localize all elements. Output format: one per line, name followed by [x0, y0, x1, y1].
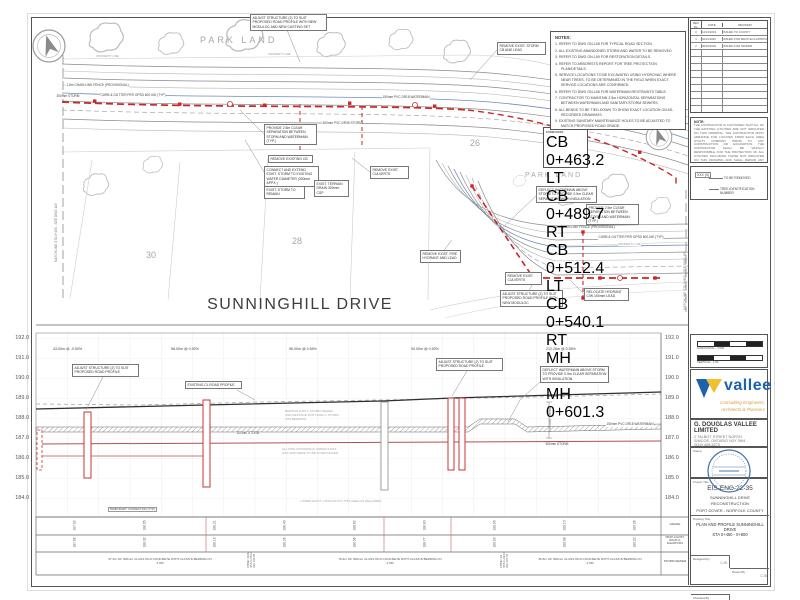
firm-logo-block: vallee Consulting Engineers, Architects …	[690, 369, 768, 419]
elev-left: 192.0	[5, 335, 29, 341]
callout-separation: PROVIDE 2.5m CLEAR SEPARATION BETWEEN ST…	[264, 124, 317, 145]
callout-existing-cl-profile: EXISTING CL ROAD PROFILE	[185, 381, 242, 389]
professional-engineer-stamp	[705, 448, 753, 494]
drawing-sheet: PARK LAND PARK LAND PROPERTY LINE PROPER…	[0, 0, 800, 600]
revision-row-empty	[691, 99, 767, 106]
tree-legend-box: XXX (X) TO BE REMOVED TREE IDENTIFICATIO…	[690, 166, 768, 200]
band1-value: 189.10	[563, 517, 568, 535]
elev-right: 189.0	[665, 395, 689, 401]
right-panel-divider	[688, 17, 689, 585]
revision-cell: ISSUED TO COUNTY	[723, 30, 767, 34]
tree-legend-leader-2	[709, 189, 719, 190]
drawn-by-value: CJB	[732, 574, 767, 578]
revision-row-empty	[691, 92, 767, 99]
designed-by-cell: Designed by : CJB	[691, 555, 730, 568]
band-structure-ticks	[206, 517, 451, 552]
elev-left: 188.0	[5, 415, 29, 421]
drawing-sta: STA 0+450 - 0+800	[693, 532, 767, 537]
pipe-note-1: 97.6m OF 300mm CLASS 65-D CONCRETE WITH …	[105, 557, 215, 565]
revision-row-empty	[691, 57, 767, 64]
revision-cell: 12/13/2019	[702, 30, 723, 34]
project-name-3: PORT DOVER - NORFOLK COUNTY	[691, 508, 769, 513]
band2-value: 189.22	[633, 534, 638, 552]
note-item: 3. REFER TO DWG GN-109 FOR RESTORATION D…	[555, 55, 681, 60]
curb-data-table: CURB DATA CB 0+463.2 LT CB 0+489.7 RT CB…	[543, 127, 588, 168]
callout-remove-culverts: REMOVE EXIST. CULVERTS	[370, 166, 409, 179]
property-line-label-2: PROPERTY LINE	[268, 53, 291, 56]
band2-value: 188.77	[423, 534, 428, 552]
storm-300-label: 300mm STORM	[56, 95, 80, 99]
callout-connect-extend: CONNECT AND EXTEND EXIST. STORM TO EXIST…	[264, 166, 319, 187]
elev-right: 184.0	[665, 495, 689, 501]
band2-value: 188.58	[353, 534, 358, 552]
band-label-storm: STORM SEWER	[662, 560, 688, 564]
band2-value: 188.36	[283, 534, 288, 552]
elev-right: 191.0	[665, 355, 689, 361]
revision-cell: 1	[691, 37, 702, 41]
elev-right: 190.0	[665, 375, 689, 381]
structure-tag-line: INV 186.85	[254, 546, 257, 568]
notes-box: NOTES: 1. REFER TO DWG GN-108 FOR TYPICA…	[550, 31, 686, 130]
elev-right: 192.0	[665, 335, 689, 341]
firm-tagline-2: Architects & Planners	[691, 407, 765, 412]
note-item: 6. REFER TO DWG GN-106 FOR WATERMAIN RES…	[555, 90, 681, 95]
notes-title: NOTES:	[555, 35, 681, 40]
callout-remove-storm-cb: REMOVE EXIST. STORM CB AND LEAD	[497, 42, 546, 55]
note-item: 8. ALL BENDS TO BE TIED-DOWN TO SHOW EXA…	[555, 108, 681, 118]
firm-company-name: G. DOUGLAS VALLEE LIMITED	[694, 422, 764, 434]
revision-cell: 0	[691, 30, 702, 34]
checked-by-cell: Checked By : TRL	[691, 594, 730, 600]
band1-value: 188.40	[283, 517, 288, 535]
revision-row-empty	[691, 85, 767, 92]
callout-adjust-structure-profile-2: ADJUST STRUCTURE (2) TO SUIT PROPOSED RO…	[436, 358, 503, 371]
revision-header-row: REV No. DATE REVISION	[691, 21, 767, 29]
revision-header-rev: REV No.	[691, 21, 702, 29]
property-line-label-3: PROPERTY LINE	[618, 243, 641, 246]
grade-label: 96.00m @ 0.55%	[288, 347, 318, 351]
title-block: Project Title EIS-ENG-22-35 SUNNINGHILL …	[690, 478, 768, 585]
band1-value: 188.80	[423, 517, 428, 535]
revision-row-empty	[691, 106, 767, 112]
structure-tag-cluster-1: CBMH 110A STA 0+552.0 INV 186.85	[247, 546, 257, 568]
storm-profile-label-2: 300mm STORM	[545, 443, 569, 447]
revision-row-empty	[691, 78, 767, 85]
street-title: SUNNINGHILL DRIVE	[120, 296, 480, 314]
designed-by-value: CJB	[693, 561, 727, 565]
callout-remove-cb: REMOVE EXISTING CB	[268, 155, 313, 163]
elev-left: 184.0	[5, 495, 29, 501]
tree-legend-leader-1	[709, 178, 723, 179]
note-item: 4. REFER TO ARBORISTS REPORT FOR TREE PR…	[555, 62, 681, 72]
revision-header-desc: REVISION	[723, 23, 767, 27]
pipe-note-2: 78.4m OF 300mm CLASS 65-D CONCRETE WITH …	[335, 557, 445, 565]
revision-cell: ISSUED FOR TENDER	[723, 44, 767, 48]
band2-value: 188.18	[213, 534, 218, 552]
callout-adjust-structure-profile-1: ADJUST STRUCTURE (2) TO SUIT PROPOSED RO…	[72, 364, 139, 377]
parcel-number-30: 30	[146, 250, 156, 260]
elev-right: 188.0	[665, 415, 689, 421]
structure-tag-cluster-2: CBMH 111 STA 0+694.0 INV 187.55	[500, 546, 510, 568]
note-item: 9. EXISTING SANITARY MAINTENANCE HOLES T…	[555, 119, 681, 129]
stamp-label: Stamp	[693, 449, 702, 453]
project-name-2: RECONSTRUCTION	[691, 501, 769, 506]
callout-remove-hydrant: REMOVE EXIST. FIRE HYDRANT AND LEAD	[420, 250, 461, 263]
parcel-number-28: 28	[292, 236, 302, 246]
revision-cell: ISSUED FOR MECP ECA APPROVAL	[723, 37, 767, 41]
scale-bars-box: HORIZONTAL - 1:500 VERTICAL - 1:50	[690, 334, 768, 368]
revision-row-empty	[691, 50, 767, 57]
callout-terrain-drain: EXIST. TERRAIN DRAIN 300mm CSP	[314, 180, 349, 197]
parcel-number-26: 26	[470, 138, 480, 148]
drawing-title-label: Drawing Title	[693, 517, 767, 521]
watermain-profile-label: 150mm PVC DR18 WATERMAIN	[606, 423, 654, 427]
matchline-label-right: MATCHLINE STA 0+800 - SEE DWG 105	[683, 251, 687, 310]
callout-relocate-hydrant: RELOCATE HYDRANT C/W 150mm LEAD	[584, 288, 629, 301]
structure-tag-line: INV 187.55	[507, 546, 510, 568]
vallee-logo-icon	[696, 378, 722, 400]
caution-text: THE CONTRACTOR IS CAUTIONED THAT ALL OF …	[694, 124, 764, 163]
revision-cell: 02/11/2020	[702, 37, 723, 41]
elev-right: 185.0	[665, 475, 689, 481]
note-item: 1. REFER TO DWG GN-108 FOR TYPICAL ROAD …	[555, 42, 681, 47]
curb-gutter-label-2: CURB & GUTTER PER OPSD 600.040 (TYP)	[598, 236, 664, 240]
callout-remove-culverts-2: REMOVE EXIST. CULVERTS	[505, 272, 542, 285]
band1-value: 189.26	[633, 517, 638, 535]
fence-label: 1.8m CHAIN LINK FENCE (PROVISIONAL)	[66, 84, 129, 88]
temp-connection-label: TEMPORARY CONNECTION (TYP.)	[108, 507, 157, 512]
revision-row: 1 02/11/2020 ISSUED FOR MECP ECA APPROVA…	[691, 36, 767, 43]
elev-right: 186.0	[665, 455, 689, 461]
elev-right: 187.0	[665, 435, 689, 441]
callout-deflect-watermain-profile: DEFLECT WATERMAIN ABOVE STORM TO PROVIDE…	[540, 366, 609, 383]
revision-row-empty	[691, 64, 767, 71]
drawing-title-cell: Drawing Title PLAN AND PROFILE SUNNINGHI…	[691, 515, 769, 535]
note-item: 5. SERVICE LOCATIONS TO BE EXCAVATED USI…	[555, 73, 681, 88]
band-label-road-elev: PROP. & EXIST. ROAD CL ELEVATIONS	[662, 536, 688, 545]
firm-address-block: G. DOUGLAS VALLEE LIMITED 2 TALBOT STREE…	[690, 419, 768, 447]
elev-left: 189.0	[5, 395, 29, 401]
elev-left: 191.0	[5, 355, 29, 361]
cover-dimension-label: 1.7m MIN. COVER	[548, 404, 552, 432]
vertical-scale-label: VERTICAL - 1:50	[697, 360, 718, 364]
revision-row-empty	[691, 71, 767, 78]
grade-label: 58.00m @ 0.50%	[170, 347, 200, 351]
elev-left: 185.0	[5, 475, 29, 481]
drawing-title: PLAN AND PROFILE SUNNINGHILL DRIVE	[693, 522, 767, 532]
north-arrow-icon	[33, 30, 65, 62]
revision-row: 0 12/13/2019 ISSUED TO COUNTY	[691, 29, 767, 36]
horizontal-scale-label: HORIZONTAL - 1:500	[697, 346, 724, 350]
curb-gutter-label: CURB & GUTTER PER OPSD 600.040 (TYP)	[100, 94, 166, 98]
profile-grey-note-2: ALL PIPE CROSSINGS UNDER EXIST. GAS AND …	[282, 448, 342, 456]
curb-data-row: CB 0+512.4 LT	[546, 242, 585, 296]
revision-table: REV No. DATE REVISION 0 12/13/2019 ISSUE…	[690, 20, 768, 113]
curb-data-row: CB 0+540.1 RT	[546, 296, 585, 350]
firm-tagline-1: Consulting Engineers,	[691, 400, 765, 405]
callout-storm-remain: EXIST. STORM TO REMAIN	[264, 186, 305, 199]
watermain-150-label: 150mm PVC DR18 WATERMAIN	[382, 96, 430, 100]
vallee-logo-text: vallee	[724, 377, 771, 395]
band2-value: 189.08	[563, 534, 568, 552]
elev-left: 186.0	[5, 455, 29, 461]
caution-note-box: NOTE: THE CONTRACTOR IS CAUTIONED THAT A…	[690, 117, 768, 163]
revision-cell: 06/26/2020	[702, 44, 723, 48]
band1-value: 188.21	[213, 517, 218, 535]
park-land-label-1: PARK LAND	[200, 35, 277, 45]
band2-value: 187.88	[73, 534, 78, 552]
note-item: 7. CONTRACTOR TO MAINTAIN 2.5m HORIZONTA…	[555, 96, 681, 106]
curb-data-row: CB 0+463.2 LT	[546, 134, 585, 188]
revision-cell: 2	[691, 44, 702, 48]
revision-header-date: DATE	[702, 23, 723, 27]
storm-profile-label-1: 300mm STORM	[236, 432, 260, 436]
curb-data-row: CB 0+489.7 RT	[546, 188, 585, 242]
tree-legend-remove-label: TO BE REMOVED	[724, 176, 751, 180]
note-item: 2. ALL EXISTING ABANDONED STORM AND WATE…	[555, 49, 681, 54]
profile-grey-note-3: LOWER EXIST. CONDUITS IN THIS AREA AS RE…	[300, 500, 420, 504]
matchline-label-left: MATCHLINE STA 0+450 - SEE DWG 103	[54, 203, 58, 262]
band2-value: 188.02	[143, 534, 148, 552]
band1-value: 188.62	[353, 517, 358, 535]
band1-value: 188.95	[493, 517, 498, 535]
project-name-1: SUNNINGHILL DRIVE	[691, 495, 769, 500]
revision-row: 2 06/26/2020 ISSUED FOR TENDER	[691, 43, 767, 50]
grade-label: 50.00m @ 0.50%	[410, 347, 440, 351]
band1-value: 187.92	[73, 517, 78, 535]
pipe-note-3: 36.8m OF 300mm CLASS 65-D CONCRETE WITH …	[535, 557, 645, 565]
grade-label: 212.26m @ 0.55%	[545, 347, 577, 351]
property-line-label-1: PROPERTY LINE	[96, 55, 119, 58]
storm-pvc-label: 300mm PVC DR35 STORM	[322, 122, 362, 126]
drawn-by-cell: Drawn By : CJB	[730, 568, 769, 581]
band-label-grade: GRADE	[662, 523, 688, 527]
profile-grey-note-1: REMOVE EXIST. STORM SEWER AND REPLACE WI…	[285, 410, 340, 422]
band1-value: 188.05	[143, 517, 148, 535]
elev-left: 190.0	[5, 375, 29, 381]
band2-value: 188.93	[493, 534, 498, 552]
elev-left: 187.0	[5, 435, 29, 441]
tree-legend-id-label: TREE IDENTIFICATION NUMBER	[720, 187, 767, 195]
callout-adjust-structure-top: ADJUST STRUCTURE (2) TO SUIT PROPOSED RO…	[250, 14, 327, 31]
grade-label: 43.00m @ -0.50%	[52, 347, 83, 351]
